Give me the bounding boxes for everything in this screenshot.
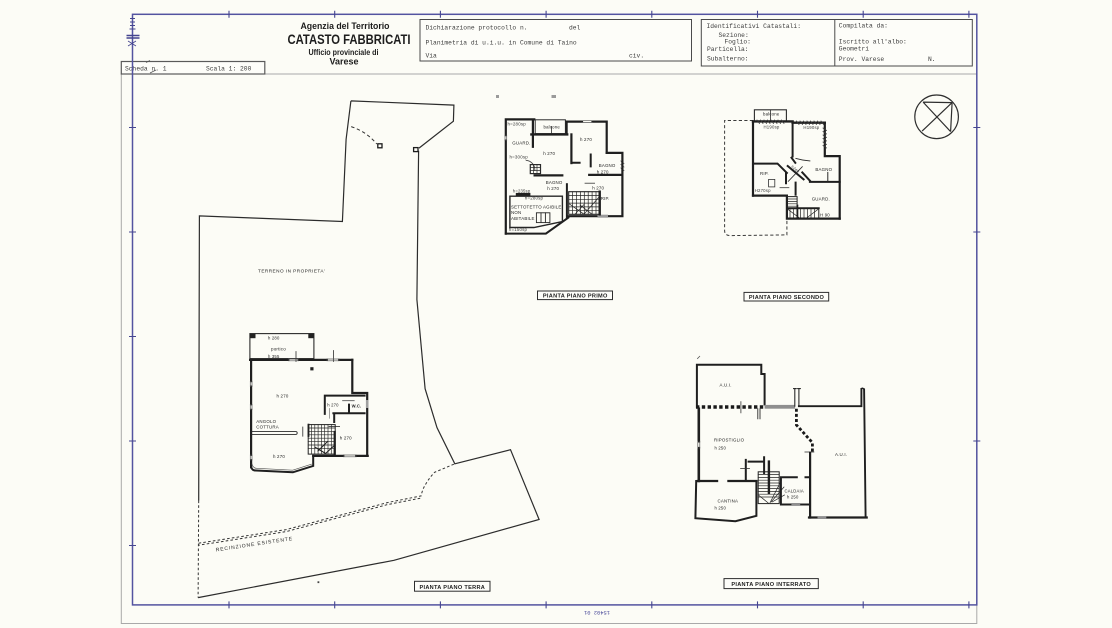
- svg-text:h 250: h 250: [715, 505, 727, 510]
- svg-text:portico: portico: [271, 347, 286, 352]
- svg-text:RIP.: RIP.: [760, 171, 769, 176]
- svg-text:NON: NON: [511, 210, 521, 215]
- svg-text:Via: Via: [426, 53, 438, 60]
- svg-text:CALDAIA: CALDAIA: [785, 488, 804, 493]
- svg-text:PIANTA PIANO PRIMO: PIANTA PIANO PRIMO: [543, 294, 608, 300]
- svg-text:CATASTO FABBRICATI: CATASTO FABBRICATI: [288, 32, 411, 47]
- svg-text:PIANTA PIANO TERRA: PIANTA PIANO TERRA: [419, 585, 485, 591]
- svg-text:h=280sp: h=280sp: [508, 122, 527, 127]
- svg-text:A.U.I.: A.U.I.: [720, 383, 732, 388]
- svg-text:H270sp: H270sp: [755, 188, 771, 193]
- svg-text:BAGNO: BAGNO: [599, 163, 616, 168]
- svg-text:15402 01: 15402 01: [584, 609, 610, 615]
- svg-text:del: del: [569, 25, 581, 32]
- svg-text:h=150sp: h=150sp: [509, 227, 528, 232]
- svg-text:ANGOLO: ANGOLO: [256, 419, 276, 424]
- svg-text:h 270: h 270: [277, 393, 289, 398]
- svg-text:Geometri: Geometri: [839, 46, 869, 53]
- svg-text:SETTOTETTO AGIBILE: SETTOTETTO AGIBILE: [511, 204, 562, 209]
- svg-text:h 270: h 270: [592, 185, 604, 190]
- svg-text:Scala 1: 200: Scala 1: 200: [206, 66, 252, 73]
- svg-text:ABITABILE: ABITABILE: [511, 216, 535, 221]
- svg-text:Prov. Varese: Prov. Varese: [839, 56, 885, 63]
- svg-text:Varese: Varese: [329, 57, 358, 67]
- svg-text:PIANTA PIANO SECONDO: PIANTA PIANO SECONDO: [749, 295, 825, 301]
- svg-text:PIANTA PIANO INTERRATO: PIANTA PIANO INTERRATO: [731, 582, 811, 588]
- svg-text:Agenzia del Territorio: Agenzia del Territorio: [301, 21, 390, 31]
- svg-text:BAGNO: BAGNO: [546, 180, 563, 185]
- svg-text:H 90: H 90: [820, 212, 830, 217]
- svg-text:W.C.: W.C.: [352, 403, 362, 408]
- svg-text:h 270: h 270: [580, 137, 592, 142]
- svg-text:h 250: h 250: [715, 446, 727, 451]
- svg-text:h 270: h 270: [597, 169, 609, 174]
- svg-text:Foglio:: Foglio:: [725, 39, 751, 46]
- svg-text:N.: N.: [928, 56, 936, 63]
- svg-text:h 355: h 355: [268, 354, 280, 359]
- svg-text:Iscritto all'albo:: Iscritto all'albo:: [839, 39, 907, 46]
- svg-text:Scheda n. 1: Scheda n. 1: [125, 65, 167, 72]
- svg-text:balcone: balcone: [763, 111, 780, 116]
- svg-text:H190sp: H190sp: [764, 124, 780, 129]
- svg-text:GUARD.: GUARD.: [812, 197, 830, 202]
- svg-text:Compilata da:: Compilata da:: [839, 23, 888, 30]
- svg-text:COTTURA: COTTURA: [256, 425, 279, 430]
- svg-text:GUARD.: GUARD.: [512, 141, 530, 146]
- svg-text:h=300sp: h=300sp: [510, 155, 529, 160]
- svg-text:h 270: h 270: [543, 151, 555, 156]
- svg-text:h 280: h 280: [268, 335, 280, 340]
- svg-text:civ.: civ.: [629, 53, 644, 60]
- svg-text:BAGNO: BAGNO: [815, 167, 832, 172]
- svg-text:h 270: h 270: [327, 402, 339, 407]
- svg-text:h=235sp: h=235sp: [513, 188, 531, 193]
- svg-text:h 250: h 250: [787, 494, 799, 499]
- svg-text:Particella:: Particella:: [707, 46, 749, 53]
- svg-text:CANTINA: CANTINA: [718, 498, 739, 503]
- svg-text:Dichiarazione protocollo n.: Dichiarazione protocollo n.: [426, 25, 528, 32]
- svg-text:RIP.: RIP.: [601, 196, 610, 201]
- svg-text:H190sp: H190sp: [803, 125, 819, 130]
- svg-text:h 270: h 270: [340, 436, 352, 441]
- svg-text:Identificativi Catastali:: Identificativi Catastali:: [707, 23, 801, 30]
- svg-text:h 270: h 270: [273, 454, 285, 459]
- svg-text:balcone: balcone: [544, 125, 561, 130]
- svg-text:Subalterno:: Subalterno:: [707, 56, 749, 63]
- svg-text:h 270: h 270: [547, 186, 559, 191]
- svg-text:RIPOSTIGLIO: RIPOSTIGLIO: [714, 437, 745, 442]
- svg-text:Planimetria di u.i.u. in Comun: Planimetria di u.i.u. in Comune di Taino: [426, 40, 577, 47]
- svg-text:h=280sp: h=280sp: [525, 196, 544, 201]
- svg-text:TERRENO IN PROPRIETA': TERRENO IN PROPRIETA': [258, 269, 325, 274]
- svg-text:A.U.I.: A.U.I.: [835, 452, 847, 457]
